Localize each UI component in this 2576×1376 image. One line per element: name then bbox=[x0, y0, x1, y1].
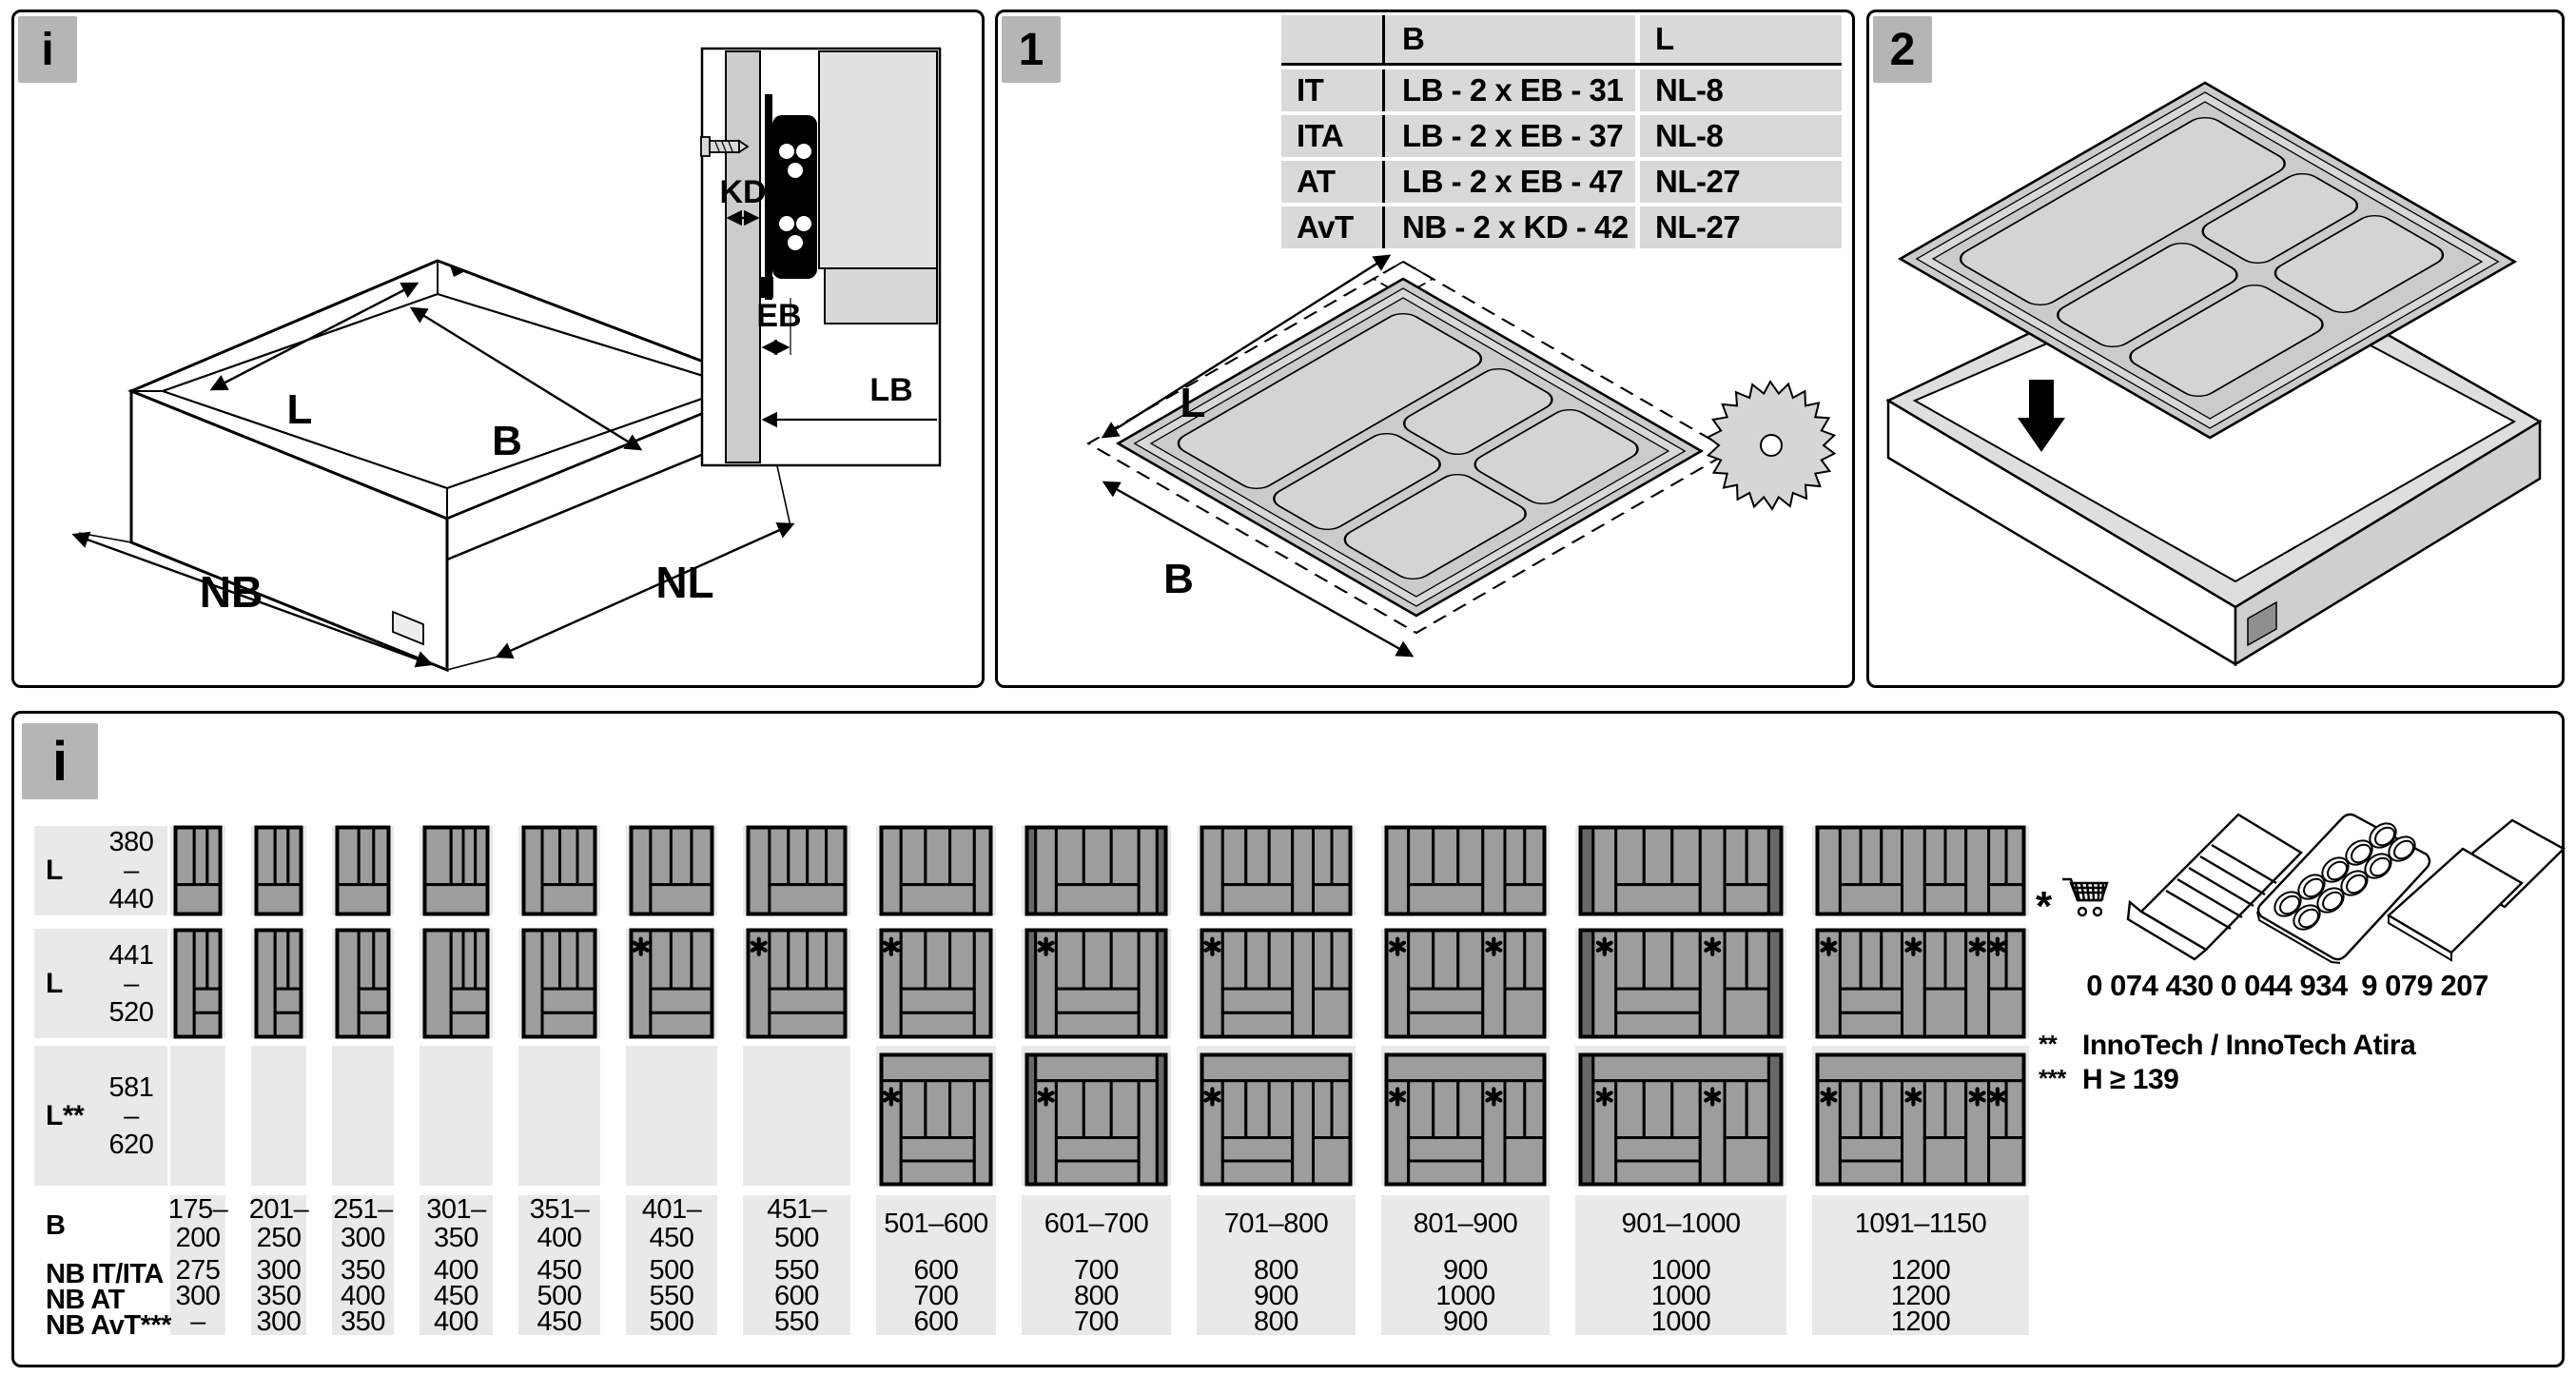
column-values-cell: 251–300 350 400 350 bbox=[332, 1195, 394, 1335]
tray-layout-icon bbox=[1385, 929, 1546, 1038]
panel-step1: L B B L IT LB - 2 x EB - 31 NL-8 ITA LB bbox=[995, 10, 1855, 688]
b-range: 451–500 bbox=[743, 1195, 850, 1252]
nb-value: 300 bbox=[251, 1309, 306, 1335]
tray-layout-icon bbox=[423, 826, 489, 915]
label-KD: KD bbox=[719, 174, 766, 210]
panel-step2: 2 bbox=[1866, 10, 2565, 688]
row-range: 441–520 bbox=[101, 941, 162, 1027]
label-NB: NB bbox=[200, 567, 263, 617]
tray-layout-icon bbox=[255, 826, 302, 915]
b-range: 801–900 bbox=[1381, 1195, 1550, 1252]
matrix-stripe bbox=[420, 1046, 493, 1186]
footnote-text: InnoTech / InnoTech Atira bbox=[2082, 1030, 2415, 1062]
matrix-stripe bbox=[1812, 826, 2029, 915]
matrix-stripe bbox=[518, 929, 600, 1038]
nb-value: 1200 bbox=[1812, 1284, 2029, 1309]
column-values-cell: 501–600 600 700 600 bbox=[876, 1195, 996, 1335]
nb-value: 400 bbox=[420, 1258, 493, 1284]
matrix-stripe bbox=[1381, 1046, 1550, 1186]
star-footnote-mark: * bbox=[2036, 883, 2052, 931]
footnote-mark: *** bbox=[2039, 1064, 2082, 1096]
label-B: B bbox=[1163, 556, 1194, 602]
column-values-cell: 301–350 400 450 400 bbox=[420, 1195, 493, 1335]
column-values-cell: 801–900 900 1000 900 bbox=[1381, 1195, 1550, 1335]
table-row: IT LB - 2 x EB - 31 NL-8 bbox=[1281, 69, 1842, 111]
matrix-stripe bbox=[1197, 826, 1356, 915]
header-empty bbox=[1281, 15, 1385, 63]
matrix-stripe bbox=[1381, 826, 1550, 915]
nb-value: 800 bbox=[1022, 1284, 1171, 1309]
b-range: 251–300 bbox=[332, 1195, 394, 1252]
cutting-formula-table: B L IT LB - 2 x EB - 31 NL-8 ITA LB - 2 … bbox=[1281, 15, 1842, 248]
row-range: 581–620 bbox=[101, 1073, 162, 1159]
b-row-label: B bbox=[34, 1195, 167, 1256]
nb-value: 900 bbox=[1381, 1258, 1550, 1284]
matrix-stripe bbox=[420, 929, 493, 1038]
nb-row-label: NB AT bbox=[34, 1288, 177, 1313]
nb-value: 400 bbox=[420, 1309, 493, 1335]
matrix-stripe bbox=[170, 929, 225, 1038]
nb-value: 900 bbox=[1381, 1309, 1550, 1335]
column-values-cell: 601–700 700 800 700 bbox=[1022, 1195, 1171, 1335]
column-values-cell: 701–800 800 900 800 bbox=[1197, 1195, 1356, 1335]
matrix-stripe bbox=[518, 826, 600, 915]
nb-value: 450 bbox=[518, 1258, 600, 1284]
column-values-cell: 401–450 500 550 500 bbox=[626, 1195, 717, 1335]
matrix-stripe bbox=[1812, 1046, 2029, 1186]
dim-NL-arrow bbox=[498, 524, 792, 657]
nb-value: 400 bbox=[332, 1284, 394, 1309]
column-values-cell: 201–250 300 350 300 bbox=[251, 1195, 306, 1335]
row-label: L bbox=[34, 855, 63, 887]
matrix-stripe bbox=[876, 1046, 996, 1186]
matrix-stripe bbox=[332, 1046, 394, 1186]
matrix-stripe bbox=[743, 826, 850, 915]
nb-value: 700 bbox=[1022, 1258, 1171, 1284]
tray-layout-icon bbox=[747, 929, 847, 1038]
nb-value: 275 bbox=[170, 1258, 225, 1284]
matrix-stripe bbox=[743, 929, 850, 1038]
matrix-stripe bbox=[170, 826, 225, 915]
tray-layout-icon bbox=[522, 929, 596, 1038]
matrix-stripe bbox=[332, 929, 394, 1038]
nb-value: 800 bbox=[1197, 1309, 1356, 1335]
flat-insert-icon bbox=[2379, 813, 2569, 967]
tray-layout-icon bbox=[255, 929, 302, 1038]
tray-layout-icon bbox=[880, 1053, 992, 1186]
tray-layout-icon bbox=[880, 929, 992, 1038]
nb-value: 550 bbox=[743, 1309, 850, 1335]
tray-layout-icon bbox=[1579, 929, 1783, 1038]
nb-value: 1000 bbox=[1575, 1309, 1786, 1335]
nb-value: 1000 bbox=[1575, 1258, 1786, 1284]
nb-value: 500 bbox=[626, 1258, 717, 1284]
row-label-cell: L 441–520 bbox=[34, 929, 167, 1038]
panel-badge: 1 bbox=[1002, 16, 1061, 83]
nb-value: 450 bbox=[518, 1309, 600, 1335]
matrix-stripe bbox=[1812, 929, 2029, 1038]
nb-row-label: NB IT/ITA bbox=[34, 1262, 177, 1288]
matrix-stripe bbox=[626, 929, 717, 1038]
row-label-cell: L** 581–620 bbox=[34, 1046, 167, 1186]
b-range: 901–1000 bbox=[1575, 1195, 1786, 1252]
b-range: 401–450 bbox=[626, 1195, 717, 1252]
instruction-sheet: L B H NB NL bbox=[0, 0, 2576, 1376]
tray-layout-icon bbox=[1025, 929, 1167, 1038]
tray-layout-icon bbox=[880, 826, 992, 915]
nb-value: 350 bbox=[332, 1258, 394, 1284]
b-range: 175–200 bbox=[170, 1195, 225, 1252]
label-EB: EB bbox=[756, 298, 801, 334]
tray-layout-icon bbox=[174, 826, 222, 915]
header-B: B bbox=[1385, 15, 1635, 63]
tray-layout-icon bbox=[1816, 826, 2025, 915]
drawer-dimension-drawing: L B H NB NL bbox=[14, 12, 982, 685]
tray-layout-icon bbox=[1816, 1053, 2025, 1186]
tray-layout-icon bbox=[630, 826, 713, 915]
tray-layout-icon bbox=[423, 929, 489, 1038]
nb-value: 1200 bbox=[1812, 1309, 2029, 1335]
table-header-row: B L bbox=[1281, 15, 1842, 66]
nb-row-label: NB AvT*** bbox=[34, 1313, 177, 1339]
row-label-cell: L 380–440 bbox=[34, 826, 167, 915]
table-row: AT LB - 2 x EB - 47 NL-27 bbox=[1281, 161, 1842, 203]
b-range: 1091–1150 bbox=[1812, 1195, 2029, 1252]
tray-layout-icon bbox=[1385, 826, 1546, 915]
nb-value: 500 bbox=[626, 1309, 717, 1335]
matrix-stripe bbox=[251, 826, 306, 915]
tray-layout-icon bbox=[1385, 1053, 1546, 1186]
tray-layout-icon bbox=[174, 929, 222, 1038]
matrix-stripe bbox=[1022, 1046, 1171, 1186]
panel-info-top: L B H NB NL bbox=[11, 10, 985, 688]
tray-layout-icon bbox=[1579, 1053, 1783, 1186]
tray-layout-icon bbox=[1200, 826, 1352, 915]
b-range: 701–800 bbox=[1197, 1195, 1356, 1252]
tray-layout-icon bbox=[1816, 929, 2025, 1038]
matrix-stripe bbox=[743, 1046, 850, 1186]
tray-layout-icon bbox=[336, 826, 390, 915]
footnote-mark: ** bbox=[2039, 1030, 2082, 1062]
matrix-stripe bbox=[876, 826, 996, 915]
nb-value: 300 bbox=[170, 1284, 225, 1309]
b-range: 601–700 bbox=[1022, 1195, 1171, 1252]
matrix-stripe bbox=[1575, 1046, 1786, 1186]
label-L: L bbox=[1181, 380, 1206, 426]
b-range: 501–600 bbox=[876, 1195, 996, 1252]
column-values-cell: 175–200 275 300 – bbox=[170, 1195, 225, 1335]
tray-layout-icon bbox=[1025, 826, 1167, 915]
nb-value: 600 bbox=[743, 1284, 850, 1309]
table-row: ITA LB - 2 x EB - 37 NL-8 bbox=[1281, 115, 1842, 157]
matrix-stripe bbox=[626, 826, 717, 915]
part-number: 9 079 207 bbox=[2339, 969, 2510, 1003]
tray-layout-icon bbox=[336, 929, 390, 1038]
panel-size-matrix: i L 380–440 L 441–520 L** 581–620 175–20… bbox=[11, 711, 2565, 1367]
runner-profile bbox=[761, 94, 817, 300]
matrix-stripe bbox=[420, 826, 493, 915]
saw-blade-icon bbox=[1708, 382, 1835, 509]
cart-icon bbox=[2059, 872, 2113, 931]
nb-value: 600 bbox=[876, 1309, 996, 1335]
matrix-stripe bbox=[876, 929, 996, 1038]
table-row: AvT NB - 2 x KD - 42 NL-27 bbox=[1281, 206, 1842, 248]
tray-layout-icon bbox=[1579, 826, 1783, 915]
panel-badge: 2 bbox=[1873, 16, 1932, 83]
tray-layout-icon bbox=[1025, 1053, 1167, 1186]
nb-value: 350 bbox=[251, 1284, 306, 1309]
b-range: 351–400 bbox=[518, 1195, 600, 1252]
tray-layout-icon bbox=[1200, 1053, 1352, 1186]
nb-value: 300 bbox=[251, 1258, 306, 1284]
nb-value: 350 bbox=[332, 1309, 394, 1335]
panel-badge: i bbox=[18, 16, 77, 83]
matrix-stripe bbox=[251, 1046, 306, 1186]
nb-value: 550 bbox=[626, 1284, 717, 1309]
column-values-cell: 1091–1150 1200 1200 1200 bbox=[1812, 1195, 2029, 1335]
matrix-stripe bbox=[1022, 929, 1171, 1038]
side-panel-board bbox=[726, 51, 760, 462]
nb-value: 700 bbox=[876, 1284, 996, 1309]
nb-value: 600 bbox=[876, 1258, 996, 1284]
header-L: L bbox=[1640, 15, 1842, 63]
label-NL: NL bbox=[655, 558, 713, 607]
nb-value: 1200 bbox=[1812, 1258, 2029, 1284]
matrix-stripe bbox=[1197, 1046, 1356, 1186]
b-range: 301–350 bbox=[420, 1195, 493, 1252]
matrix-stripe bbox=[1197, 929, 1356, 1038]
nb-value: 550 bbox=[743, 1258, 850, 1284]
matrix-stripe bbox=[626, 1046, 717, 1186]
mounting-detail-inset: KD EB LB bbox=[701, 49, 940, 465]
label-L: L bbox=[287, 386, 313, 433]
footnote-height: *** H ≥ 139 bbox=[2039, 1064, 2178, 1096]
row-label: L bbox=[34, 968, 63, 1000]
matrix-stripe bbox=[251, 929, 306, 1038]
tray-layout-icon bbox=[630, 929, 713, 1038]
matrix-stripe bbox=[518, 1046, 600, 1186]
matrix-stripe bbox=[1575, 826, 1786, 915]
nb-value: 900 bbox=[1197, 1284, 1356, 1309]
label-B: B bbox=[492, 418, 522, 464]
tray-layout-icon bbox=[747, 826, 847, 915]
nb-value: 1000 bbox=[1575, 1284, 1786, 1309]
matrix-stripe bbox=[1575, 929, 1786, 1038]
nb-value: 450 bbox=[420, 1284, 493, 1309]
matrix-stripe bbox=[332, 826, 394, 915]
nb-value: 800 bbox=[1197, 1258, 1356, 1284]
nb-value: 1000 bbox=[1381, 1284, 1550, 1309]
tray-insertion-drawing bbox=[1869, 12, 2562, 685]
column-values-cell: 451–500 550 600 550 bbox=[743, 1195, 850, 1335]
nb-value: 700 bbox=[1022, 1309, 1171, 1335]
b-range: 201–250 bbox=[251, 1195, 306, 1252]
footnote-text: H ≥ 139 bbox=[2082, 1064, 2178, 1096]
matrix-stripe bbox=[1022, 826, 1171, 915]
row-range: 380–440 bbox=[101, 828, 162, 914]
column-values-cell: 351–400 450 500 450 bbox=[518, 1195, 600, 1335]
matrix-stripe bbox=[1381, 929, 1550, 1038]
footnote-innotech: ** InnoTech / InnoTech Atira bbox=[2039, 1030, 2415, 1062]
tray-layout-icon bbox=[522, 826, 596, 915]
column-values-cell: 901–1000 1000 1000 1000 bbox=[1575, 1195, 1786, 1335]
matrix-stripe bbox=[170, 1046, 225, 1186]
row-label: L** bbox=[34, 1100, 84, 1132]
label-LB: LB bbox=[869, 372, 912, 408]
nb-value: – bbox=[170, 1309, 225, 1335]
nb-value: 500 bbox=[518, 1284, 600, 1309]
tray-layout-icon bbox=[1200, 929, 1352, 1038]
